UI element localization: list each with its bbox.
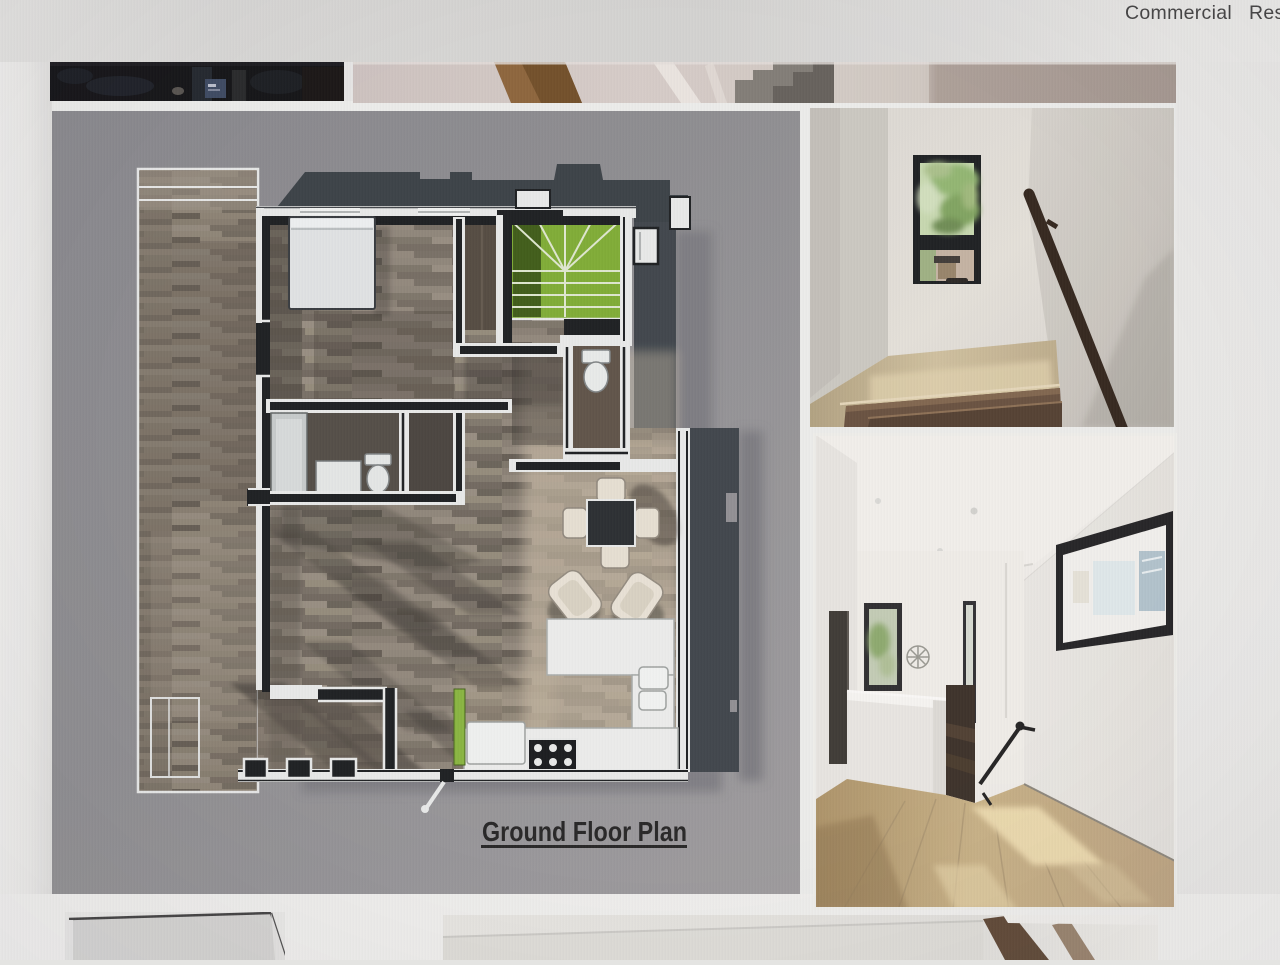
- svg-text:Ground Floor Plan: Ground Floor Plan: [482, 816, 687, 847]
